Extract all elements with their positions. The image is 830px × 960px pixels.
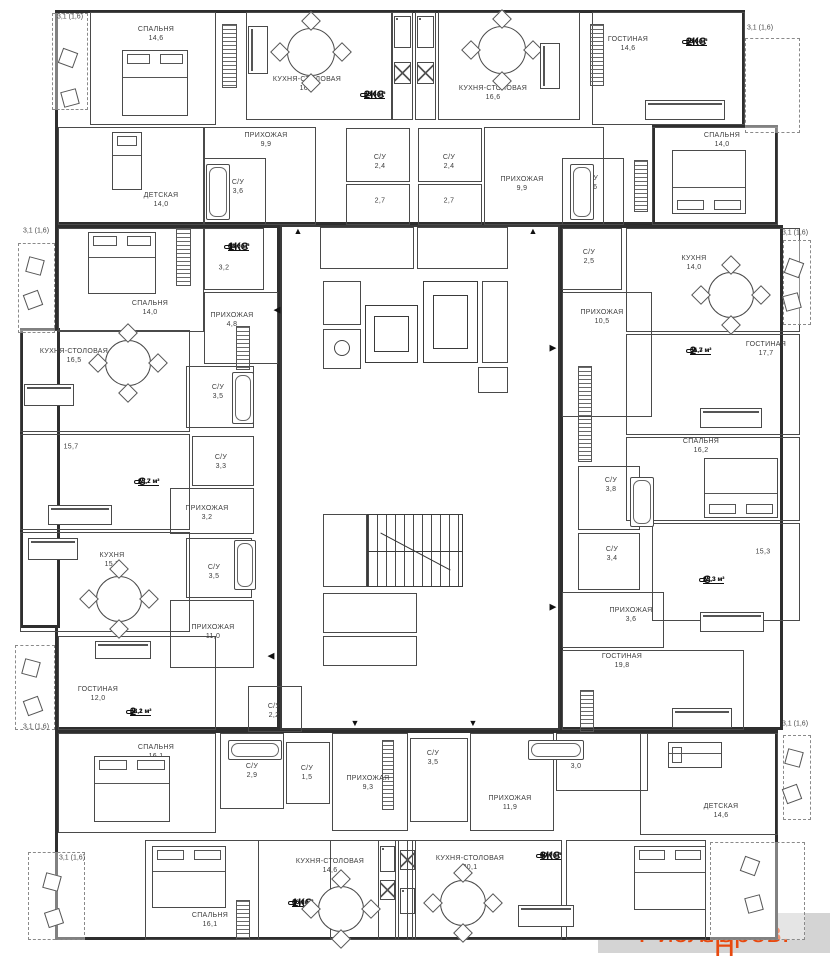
room-label: 15,3 bbox=[756, 547, 771, 556]
sofa-icon bbox=[672, 708, 732, 728]
balcony-label: 3,1 (1,6) bbox=[23, 228, 49, 235]
sofa-icon bbox=[700, 408, 762, 428]
stove-icon bbox=[394, 16, 411, 48]
stove-icon bbox=[380, 846, 395, 872]
room-label: 2,7 bbox=[444, 196, 455, 205]
room-outline bbox=[323, 514, 367, 587]
bathtub-icon bbox=[528, 740, 584, 760]
room-outline bbox=[323, 636, 417, 666]
room-label: С/У3,4 bbox=[606, 545, 618, 563]
room-label: С/У3,8 bbox=[605, 476, 617, 494]
room-outline bbox=[323, 593, 417, 633]
sink-icon bbox=[380, 880, 395, 900]
dining-table-icon bbox=[105, 340, 151, 386]
room-label: ДЕТСКАЯ14,6 bbox=[704, 802, 739, 820]
room-label: С/У3,6 bbox=[232, 178, 244, 196]
sink-icon bbox=[394, 62, 411, 84]
apartment-badge: С22,2 м²15,7 м² bbox=[134, 480, 142, 484]
room-label: ГОСТИНАЯ14,6 bbox=[608, 35, 648, 53]
bed-icon bbox=[112, 132, 142, 190]
bed-icon bbox=[122, 50, 188, 116]
bathtub-icon bbox=[234, 540, 256, 590]
room-label: ПРИХОЖАЯ9,3 bbox=[346, 774, 389, 792]
room-outline bbox=[478, 367, 508, 393]
balcony bbox=[15, 645, 55, 730]
dining-table-icon bbox=[478, 26, 526, 74]
room-label: ПРИХОЖАЯ3,6 bbox=[609, 606, 652, 624]
elevator-cab bbox=[374, 316, 409, 352]
bathtub-icon bbox=[206, 164, 230, 220]
bathtub-icon bbox=[228, 740, 282, 760]
wardrobe-hatch bbox=[222, 24, 237, 88]
entry-arrow: ◀ bbox=[274, 305, 281, 316]
stove-icon bbox=[400, 888, 415, 914]
elevator-cab bbox=[433, 295, 468, 349]
dining-table-icon bbox=[318, 886, 364, 932]
room-label: ГОСТИНАЯ12,0 bbox=[78, 685, 118, 703]
wardrobe-hatch bbox=[176, 228, 191, 286]
room-label: КУХНЯ-СТОЛОВАЯ14,6 bbox=[296, 857, 364, 875]
room-label: С/У1,5 bbox=[301, 764, 313, 782]
room-label: С/У3,5 bbox=[212, 383, 224, 401]
room-label: СПАЛЬНЯ16,2 bbox=[683, 437, 719, 455]
trash-chute-icon bbox=[334, 340, 350, 356]
room-label: КУХНЯ14,0 bbox=[682, 254, 707, 272]
balcony-label: 3,1 (1,6) bbox=[782, 721, 808, 728]
room-label: СПАЛЬНЯ16,1 bbox=[192, 911, 228, 929]
room-label: ПРИХОЖАЯ11,0 bbox=[191, 623, 234, 641]
sofa-icon bbox=[518, 905, 574, 927]
wardrobe-hatch bbox=[236, 326, 250, 370]
bed-icon bbox=[94, 756, 170, 822]
floor-plan: Avito Риэлторов.Нет 3,1 (1,6)3,1 (1,6)3,… bbox=[0, 0, 830, 960]
room-outline bbox=[20, 330, 190, 432]
bathtub-icon bbox=[232, 372, 254, 424]
room-label: ПРИХОЖАЯ9,9 bbox=[244, 131, 287, 149]
entry-arrow: ▶ bbox=[550, 602, 557, 613]
room-label: ПРИХОЖАЯ10,5 bbox=[580, 308, 623, 326]
apartment-badge: 3КС90,7 м²49,0 м² bbox=[536, 854, 544, 858]
room-label: ГОСТИНАЯ19,8 bbox=[602, 652, 642, 670]
room-label: 3,2 bbox=[219, 263, 230, 272]
room-label: С/У3,5 bbox=[427, 749, 439, 767]
wardrobe-hatch bbox=[634, 160, 648, 212]
balcony-label: 3,1 (1,6) bbox=[59, 855, 85, 862]
bathtub-icon bbox=[570, 164, 594, 220]
room-label: ПРИХОЖАЯ4,8 bbox=[210, 311, 253, 329]
room-label: ПРИХОЖАЯ11,9 bbox=[488, 794, 531, 812]
entry-arrow: ▲ bbox=[529, 226, 538, 236]
room-outline bbox=[482, 281, 508, 363]
balcony-label: 3,1 (1,6) bbox=[782, 230, 808, 237]
room-label: ДЕТСКАЯ14,0 bbox=[144, 191, 179, 209]
staircase bbox=[367, 514, 463, 587]
sofa-icon bbox=[28, 538, 78, 560]
entry-arrow: ▶ bbox=[550, 343, 557, 354]
wardrobe-hatch bbox=[236, 900, 250, 940]
room-outline bbox=[652, 523, 800, 621]
room-outline bbox=[417, 227, 508, 269]
bed-icon bbox=[152, 846, 226, 908]
apartment-badge: 1КС46,0 м²16,1 м² bbox=[288, 901, 296, 905]
entry-arrow: ▼ bbox=[469, 718, 478, 728]
stair-core-outline bbox=[280, 225, 560, 730]
room-outline bbox=[320, 227, 414, 269]
room-label: С/У2,5 bbox=[583, 248, 595, 266]
sofa-icon bbox=[48, 505, 112, 525]
room-label: С/У2,2 bbox=[268, 702, 280, 720]
room-label: С/У2,9 bbox=[246, 762, 258, 780]
sofa-icon bbox=[24, 384, 74, 406]
balcony bbox=[783, 240, 811, 325]
balcony bbox=[18, 243, 55, 333]
room-outline bbox=[204, 228, 264, 290]
room-label: ПРИХОЖАЯ9,9 bbox=[500, 175, 543, 193]
sink-icon bbox=[400, 850, 415, 870]
room-label: С/У3,5 bbox=[208, 563, 220, 581]
apartment-badge: С22,3 м²15,3 м² bbox=[699, 578, 707, 582]
room-label: СПАЛЬНЯ14,0 bbox=[704, 131, 740, 149]
entry-arrow: ▼ bbox=[351, 718, 360, 728]
balcony-label: 3,1 (1,6) bbox=[57, 14, 83, 21]
sofa-icon bbox=[700, 612, 764, 632]
room-label: СПАЛЬНЯ14,0 bbox=[132, 299, 168, 317]
stove-icon bbox=[417, 16, 434, 48]
room-label: СПАЛЬНЯ14,6 bbox=[138, 25, 174, 43]
dining-table-icon bbox=[708, 272, 754, 318]
room-label: 2,7 bbox=[375, 196, 386, 205]
bed-icon bbox=[704, 458, 778, 518]
balcony-label: 3,1 (1,6) bbox=[747, 25, 773, 32]
balcony bbox=[783, 735, 811, 820]
bed-icon bbox=[672, 150, 746, 214]
bed-icon bbox=[88, 232, 156, 294]
sofa-icon bbox=[248, 26, 268, 74]
dining-table-icon bbox=[96, 576, 142, 622]
balcony bbox=[28, 852, 85, 940]
dining-table-icon bbox=[440, 880, 486, 926]
room-label: С/У3,3 bbox=[215, 453, 227, 471]
apartment-badge: 1КС43,6 м²14,0 м² bbox=[224, 245, 232, 249]
bed-icon bbox=[668, 742, 722, 768]
wardrobe-hatch bbox=[580, 690, 594, 732]
wardrobe-hatch bbox=[578, 366, 592, 462]
room-label: ГОСТИНАЯ17,7 bbox=[746, 340, 786, 358]
balcony bbox=[710, 842, 805, 940]
room-label: С/У2,4 bbox=[443, 153, 455, 171]
bathtub-icon bbox=[630, 477, 654, 527]
balcony-label: 3,1 (1,6) bbox=[23, 724, 49, 731]
room-outline bbox=[323, 281, 361, 325]
room-label: КУХНЯ-СТОЛОВАЯ16,6 bbox=[459, 84, 527, 102]
sofa-icon bbox=[540, 43, 560, 89]
balcony bbox=[745, 38, 800, 133]
sink-icon bbox=[417, 62, 434, 84]
room-label: ПРИХОЖАЯ3,2 bbox=[185, 504, 228, 522]
room-label: С/У2,4 bbox=[374, 153, 386, 171]
apartment-badge: 2КС65,4 м²28,6 м² bbox=[360, 93, 368, 97]
sofa-icon bbox=[645, 100, 725, 120]
entry-arrow: ◀ bbox=[268, 651, 275, 662]
apartment-badge: 262,2 м²28,1 м² bbox=[126, 710, 134, 714]
apartment-badge: 266,3 м²31,7 м² bbox=[686, 349, 694, 353]
sofa-icon bbox=[95, 641, 151, 659]
room-label: 15,7 bbox=[64, 442, 79, 451]
apartment-badge: 2КС65,4 м²28,6 м² bbox=[682, 40, 690, 44]
wardrobe-hatch bbox=[590, 24, 604, 86]
entry-arrow: ▲ bbox=[294, 226, 303, 236]
dining-table-icon bbox=[287, 28, 335, 76]
bed-icon bbox=[634, 846, 706, 910]
